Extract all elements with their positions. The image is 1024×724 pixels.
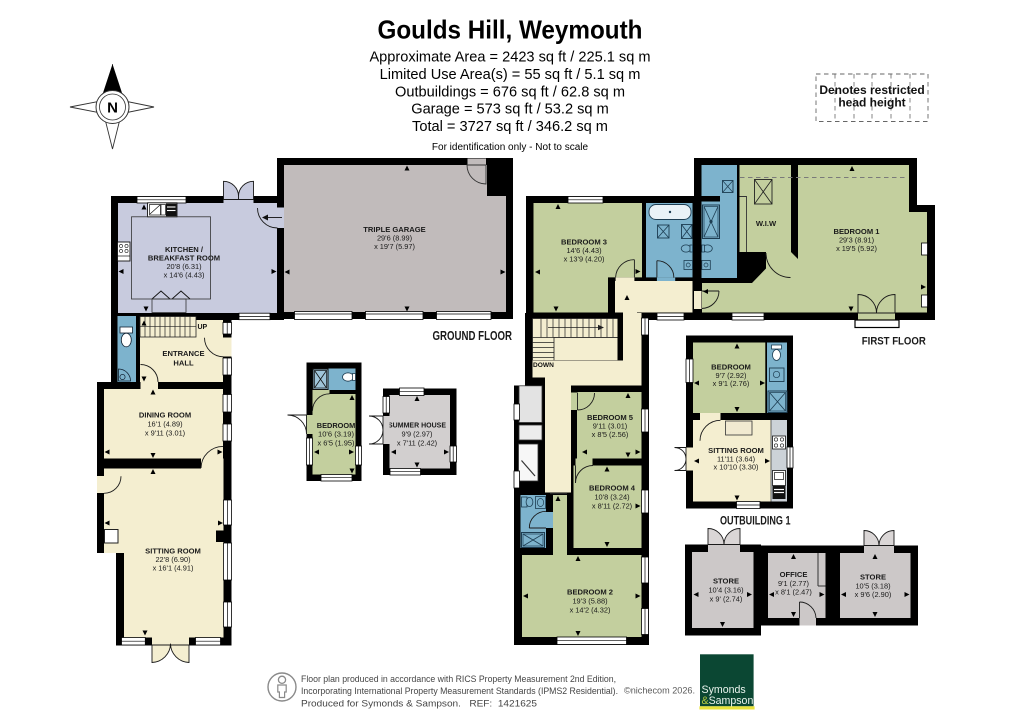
svg-text:BEDROOM 2: BEDROOM 2 bbox=[567, 588, 613, 597]
svg-text:SUMMER HOUSE: SUMMER HOUSE bbox=[388, 421, 446, 430]
svg-text:10'8 (3.24): 10'8 (3.24) bbox=[594, 493, 629, 502]
svg-text:Floor plan produced in accorda: Floor plan produced in accordance with R… bbox=[301, 673, 616, 684]
svg-text:ENTRANCE: ENTRANCE bbox=[162, 349, 204, 358]
svg-text:OUTBUILDING 1: OUTBUILDING 1 bbox=[720, 515, 791, 527]
svg-text:head height: head height bbox=[838, 96, 905, 110]
svg-text:N: N bbox=[107, 100, 118, 117]
svg-text:10'4 (3.16): 10'4 (3.16) bbox=[708, 586, 743, 595]
svg-text:FIRST FLOOR: FIRST FLOOR bbox=[862, 335, 926, 347]
svg-text:W.I.W: W.I.W bbox=[756, 219, 777, 228]
svg-text:x 9'6 (2.90): x 9'6 (2.90) bbox=[855, 590, 892, 599]
svg-text:DOWN: DOWN bbox=[533, 362, 554, 369]
svg-text:Limited Use Area(s) = 55 sq ft: Limited Use Area(s) = 55 sq ft / 5.1 sq … bbox=[380, 67, 641, 83]
svg-text:Approximate Area = 2423 sq ft: Approximate Area = 2423 sq ft / 225.1 sq… bbox=[369, 50, 650, 66]
svg-text:x 16'1 (4.91): x 16'1 (4.91) bbox=[153, 564, 194, 573]
svg-text:x 8'11 (2.72): x 8'11 (2.72) bbox=[592, 502, 632, 511]
svg-text:x 19'5 (5.92): x 19'5 (5.92) bbox=[836, 244, 877, 253]
svg-text:9'1 (2.77): 9'1 (2.77) bbox=[778, 579, 809, 588]
svg-text:STORE: STORE bbox=[713, 577, 739, 586]
svg-text:©nichecom 2026.: ©nichecom 2026. bbox=[624, 685, 695, 696]
svg-text:BEDROOM 4: BEDROOM 4 bbox=[589, 484, 636, 493]
svg-text:x 9'1 (2.76): x 9'1 (2.76) bbox=[713, 379, 750, 388]
svg-text:Goulds Hill, Weymouth: Goulds Hill, Weymouth bbox=[378, 16, 643, 44]
svg-text:HALL: HALL bbox=[173, 359, 194, 368]
svg-text:UP: UP bbox=[198, 324, 208, 331]
svg-text:&Sampson: &Sampson bbox=[702, 695, 754, 707]
svg-text:Garage = 573 sq ft / 53.2 sq m: Garage = 573 sq ft / 53.2 sq m bbox=[411, 102, 609, 118]
svg-text:x 14'2 (4.32): x 14'2 (4.32) bbox=[570, 606, 611, 615]
svg-text:x 14'6 (4.43): x 14'6 (4.43) bbox=[164, 271, 205, 280]
svg-text:x 8'5 (2.56): x 8'5 (2.56) bbox=[592, 430, 629, 439]
svg-text:For identification only - Not: For identification only - Not to scale bbox=[432, 142, 589, 153]
svg-text:16'1 (4.89): 16'1 (4.89) bbox=[147, 420, 182, 429]
svg-text:10'5 (3.18): 10'5 (3.18) bbox=[855, 581, 890, 590]
svg-text:x 6'5 (1.95): x 6'5 (1.95) bbox=[318, 438, 355, 447]
svg-text:x 13'9 (4.20): x 13'9 (4.20) bbox=[564, 255, 605, 264]
svg-text:Incorporating International Pr: Incorporating International Property Mea… bbox=[301, 685, 618, 696]
svg-text:STORE: STORE bbox=[860, 573, 886, 582]
svg-text:9'9 (2.97): 9'9 (2.97) bbox=[402, 430, 433, 439]
svg-text:x 7'11 (2.42): x 7'11 (2.42) bbox=[397, 439, 437, 448]
svg-text:OFFICE: OFFICE bbox=[780, 570, 808, 579]
svg-text:DINING ROOM: DINING ROOM bbox=[139, 411, 191, 420]
svg-text:Produced for Symonds & Sampson: Produced for Symonds & Sampson. REF: 142… bbox=[301, 698, 537, 709]
svg-text:x 9'11 (3.01): x 9'11 (3.01) bbox=[145, 429, 185, 438]
svg-text:x 9' (2.74): x 9' (2.74) bbox=[710, 595, 743, 604]
svg-text:Total = 3727 sq ft / 346.2 sq: Total = 3727 sq ft / 346.2 sq m bbox=[412, 119, 608, 135]
svg-text:x 10'10 (3.30): x 10'10 (3.30) bbox=[714, 463, 759, 472]
svg-text:x 8'1 (2.47): x 8'1 (2.47) bbox=[775, 588, 812, 597]
svg-text:GROUND FLOOR: GROUND FLOOR bbox=[433, 329, 513, 343]
svg-text:19'3 (5.88): 19'3 (5.88) bbox=[572, 597, 607, 606]
svg-text:10'6 (3.19): 10'6 (3.19) bbox=[318, 430, 354, 439]
svg-text:Outbuildings = 676 sq ft / 62.: Outbuildings = 676 sq ft / 62.8 sq m bbox=[395, 85, 625, 101]
svg-text:x 19'7 (5.97): x 19'7 (5.97) bbox=[374, 242, 415, 251]
